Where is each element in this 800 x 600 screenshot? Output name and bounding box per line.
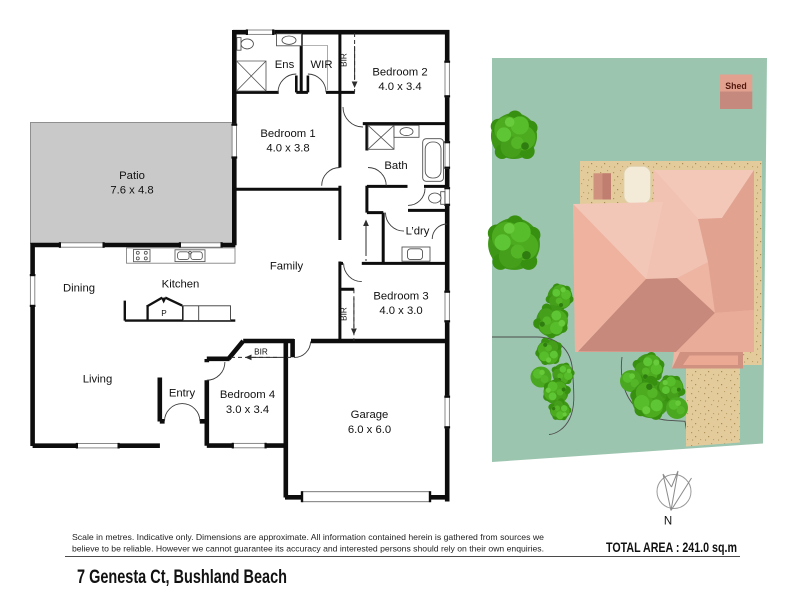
svg-text:L’dry: L’dry (406, 226, 430, 238)
svg-text:believe to be reliable. Howeve: believe to be reliable. However we canno… (72, 545, 544, 554)
svg-text:TOTAL AREA : 241.0 sq.m: TOTAL AREA : 241.0 sq.m (606, 540, 737, 555)
svg-text:Kitchen: Kitchen (162, 279, 200, 291)
svg-text:Bedroom 2: Bedroom 2 (372, 67, 427, 79)
svg-text:Scale in metres. Indicative on: Scale in metres. Indicative only. Dimens… (72, 533, 544, 542)
svg-text:Dining: Dining (63, 283, 95, 295)
svg-text:Garage: Garage (351, 409, 389, 421)
svg-text:3.0 x 3.4: 3.0 x 3.4 (226, 404, 269, 416)
svg-text:P: P (161, 309, 167, 318)
svg-text:4.0 x 3.0: 4.0 x 3.0 (379, 305, 422, 317)
svg-text:Living: Living (83, 374, 113, 386)
svg-text:7 Genesta Ct, Bushland Beach: 7 Genesta Ct, Bushland Beach (77, 567, 287, 588)
svg-text:6.0 x 6.0: 6.0 x 6.0 (348, 424, 391, 436)
svg-text:BIR: BIR (339, 307, 348, 321)
svg-text:WIR: WIR (311, 59, 333, 71)
svg-text:4.0 x 3.8: 4.0 x 3.8 (266, 143, 309, 155)
svg-text:BIR: BIR (340, 53, 349, 67)
svg-text:Patio: Patio (119, 170, 145, 182)
svg-text:7.6 x 4.8: 7.6 x 4.8 (110, 185, 153, 197)
svg-text:N: N (664, 516, 672, 528)
svg-text:Bedroom 1: Bedroom 1 (260, 128, 315, 140)
svg-text:Family: Family (270, 261, 304, 273)
svg-text:BIR: BIR (254, 348, 268, 357)
svg-text:Entry: Entry (169, 388, 196, 400)
svg-text:Shed: Shed (725, 81, 747, 91)
svg-text:4.0 x 3.4: 4.0 x 3.4 (378, 81, 421, 93)
svg-text:Bedroom 4: Bedroom 4 (220, 389, 275, 401)
svg-text:Bath: Bath (384, 160, 407, 172)
svg-text:Ens: Ens (275, 59, 295, 71)
svg-text:Bedroom 3: Bedroom 3 (373, 291, 428, 303)
